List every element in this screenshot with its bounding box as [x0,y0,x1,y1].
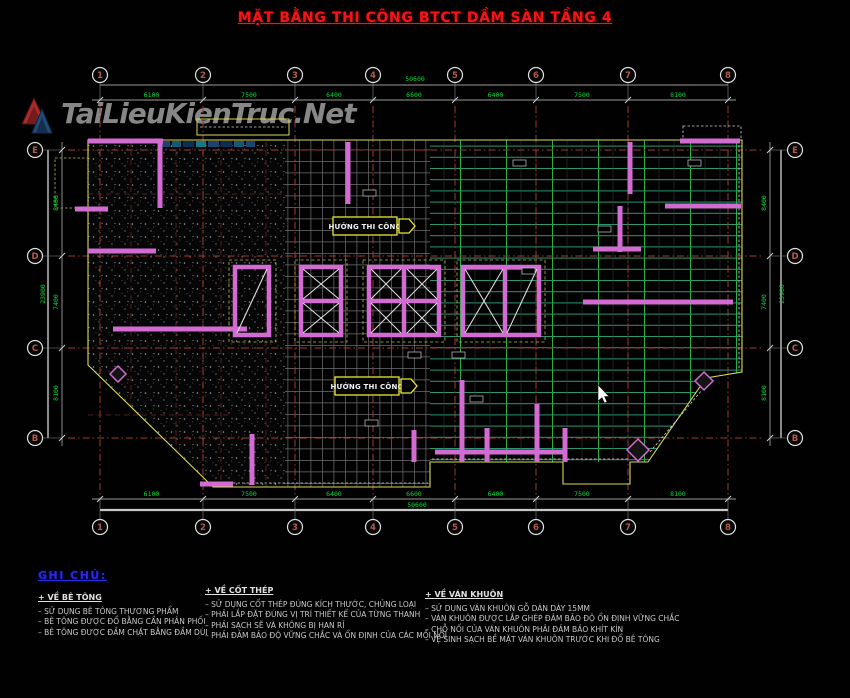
svg-text:8400: 8400 [52,195,60,211]
grid-bubble-col-6b: 6 [529,520,544,535]
svg-text:7500: 7500 [241,91,257,99]
svg-text:6400: 6400 [488,91,504,99]
grid-bubble-row-Dr: D [788,249,803,264]
note-item: – SỬ DỤNG BÊ TÔNG THƯƠNG PHẨM [38,607,208,618]
svg-text:E: E [32,146,38,156]
svg-text:5: 5 [452,523,458,533]
grid-bubble-row-Er: E [788,143,803,158]
grid-bubble-col-5b: 5 [448,520,463,535]
note-item: – SỬ DỤNG VÁN KHUÔN GỖ DÁN DÀY 15MM [425,604,680,615]
concrete-cast-region [88,140,285,487]
svg-text:7400: 7400 [760,294,768,310]
svg-text:50600: 50600 [405,75,425,83]
svg-text:4: 4 [370,71,376,81]
svg-text:8100: 8100 [670,91,686,99]
note-item: – VÁN KHUÔN ĐƯỢC LẮP GHÉP ĐẢM BẢO ĐỘ ỔN … [425,614,680,625]
svg-text:6400: 6400 [488,490,504,498]
svg-text:8: 8 [725,71,731,81]
grid-bubble-col-5: 5 [448,68,463,83]
svg-text:3: 3 [292,523,298,533]
grid-bubble-col-1b: 1 [93,520,108,535]
notes-section-title: + VỀ BÊ TÔNG [38,593,208,604]
grid-bubble-col-4b: 4 [366,520,381,535]
direction-label-text: HƯỚNG THI CÔNG [330,382,403,391]
note-item: – BÊ TÔNG ĐƯỢC ĐẦM CHẶT BẰNG ĐẦM DÙI [38,628,208,639]
svg-text:6600: 6600 [406,490,422,498]
note-item: – VỆ SINH SẠCH BỀ MẶT VÁN KHUÔN TRƯỚC KH… [425,635,680,646]
svg-text:7: 7 [625,523,631,533]
cad-screenshot: MẶT BẰNG THI CÔNG BTCT DẦM SÀN TẦNG 4 Ta… [0,0,850,698]
svg-text:50600: 50600 [407,501,427,509]
svg-text:4: 4 [370,523,376,533]
svg-text:2: 2 [200,71,206,81]
svg-text:B: B [792,434,798,444]
direction-label-1: HƯỚNG THI CÔNG [328,217,415,235]
grid-bubble-col-7: 7 [621,68,636,83]
svg-text:7400: 7400 [52,294,60,310]
note-item: – PHẢI ĐẢM BẢO ĐỘ VỮNG CHẮC VÀ ỔN ĐỊNH C… [205,631,447,642]
svg-text:8100: 8100 [52,385,60,401]
svg-text:5: 5 [452,71,458,81]
svg-text:C: C [792,344,798,354]
formwork-grid-region [285,140,430,487]
notes-section-title: + VỀ VÁN KHUÔN [425,590,680,601]
svg-text:B: B [32,434,38,444]
svg-text:8400: 8400 [760,195,768,211]
notes-section-rebar: + VỀ CỐT THÉP – SỬ DỤNG CỐT THÉP ĐÚNG KÍ… [205,586,447,642]
svg-text:C: C [32,344,38,354]
notes-header: GHI CHÚ: [38,569,107,582]
grid-bubble-col-8b: 8 [721,520,736,535]
grid-bubble-col-8: 8 [721,68,736,83]
grid-bubble-col-2: 2 [196,68,211,83]
grid-bubble-col-6: 6 [529,68,544,83]
svg-text:2: 2 [200,523,206,533]
notes-section-title: + VỀ CỐT THÉP [205,586,447,597]
svg-text:7500: 7500 [574,490,590,498]
svg-text:6600: 6600 [406,91,422,99]
notes-section-concrete: + VỀ BÊ TÔNG – SỬ DỤNG BÊ TÔNG THƯƠNG PH… [38,593,208,638]
notes-section-formwork: + VỀ VÁN KHUÔN – SỬ DỤNG VÁN KHUÔN GỖ DÁ… [425,590,680,646]
direction-label-text: HƯỚNG THI CÔNG [328,222,401,231]
svg-text:8100: 8100 [670,490,686,498]
grid-bubble-row-Cr: C [788,341,803,356]
svg-text:7500: 7500 [574,91,590,99]
svg-text:7500: 7500 [241,490,257,498]
svg-text:6: 6 [533,71,539,81]
svg-text:E: E [792,146,798,156]
svg-text:6100: 6100 [144,490,160,498]
svg-text:3: 3 [292,71,298,81]
svg-text:23900: 23900 [778,284,786,304]
svg-text:D: D [31,252,38,262]
note-item: – PHẢI LẮP ĐẶT ĐÚNG VỊ TRÍ THIẾT KẾ CỦA … [205,610,447,621]
grid-bubble-row-D: D [28,249,43,264]
drawing-canvas: HƯỚNG THI CÔNG HƯỚNG THI CÔNG [0,0,850,560]
svg-text:8100: 8100 [760,385,768,401]
svg-text:1: 1 [97,523,103,533]
svg-text:7: 7 [625,71,631,81]
svg-text:6100: 6100 [144,91,160,99]
svg-text:1: 1 [97,71,103,81]
svg-text:6: 6 [533,523,539,533]
grid-bubble-row-C: C [28,341,43,356]
grid-bubble-row-Br: B [788,431,803,446]
svg-text:6400: 6400 [326,91,342,99]
grid-bubble-col-1: 1 [93,68,108,83]
svg-text:D: D [791,252,798,262]
note-item: – SỬ DỤNG CỐT THÉP ĐÚNG KÍCH THƯỚC, CHỦN… [205,600,447,611]
svg-text:6400: 6400 [326,490,342,498]
note-item: – PHẢI SẠCH SẼ VÀ KHÔNG BỊ HAN RỈ [205,621,447,632]
note-item: – BÊ TÔNG ĐƯỢC ĐỔ BẰNG CẦN PHÂN PHỐI [38,617,208,628]
grid-bubble-row-B: B [28,431,43,446]
grid-bubble-col-7b: 7 [621,520,636,535]
grid-bubble-col-4: 4 [366,68,381,83]
note-item: – CHỖ NỐI CỦA VÁN KHUÔN PHẢI ĐẢM BẢO KHÍ… [425,625,680,636]
svg-text:23900: 23900 [39,284,47,304]
svg-text:8: 8 [725,523,731,533]
direction-label-2: HƯỚNG THI CÔNG [330,377,417,395]
grid-bubble-col-2b: 2 [196,520,211,535]
grid-bubble-row-E: E [28,143,43,158]
grid-bubble-col-3: 3 [288,68,303,83]
grid-bubble-col-3b: 3 [288,520,303,535]
